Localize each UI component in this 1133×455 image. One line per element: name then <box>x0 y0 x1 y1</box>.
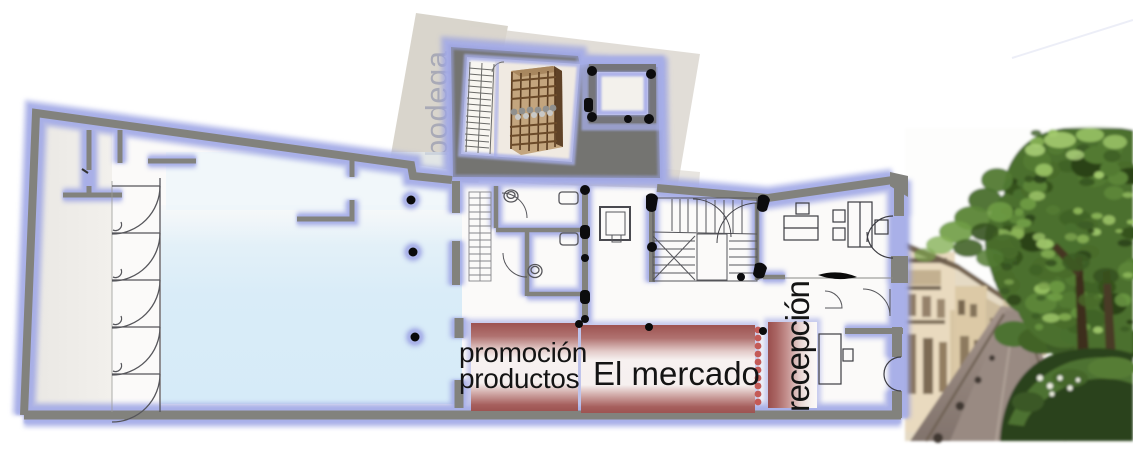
svg-text:recepción: recepción <box>779 281 816 412</box>
svg-text:productos: productos <box>459 363 579 394</box>
svg-text:El mercado: El mercado <box>593 355 760 392</box>
